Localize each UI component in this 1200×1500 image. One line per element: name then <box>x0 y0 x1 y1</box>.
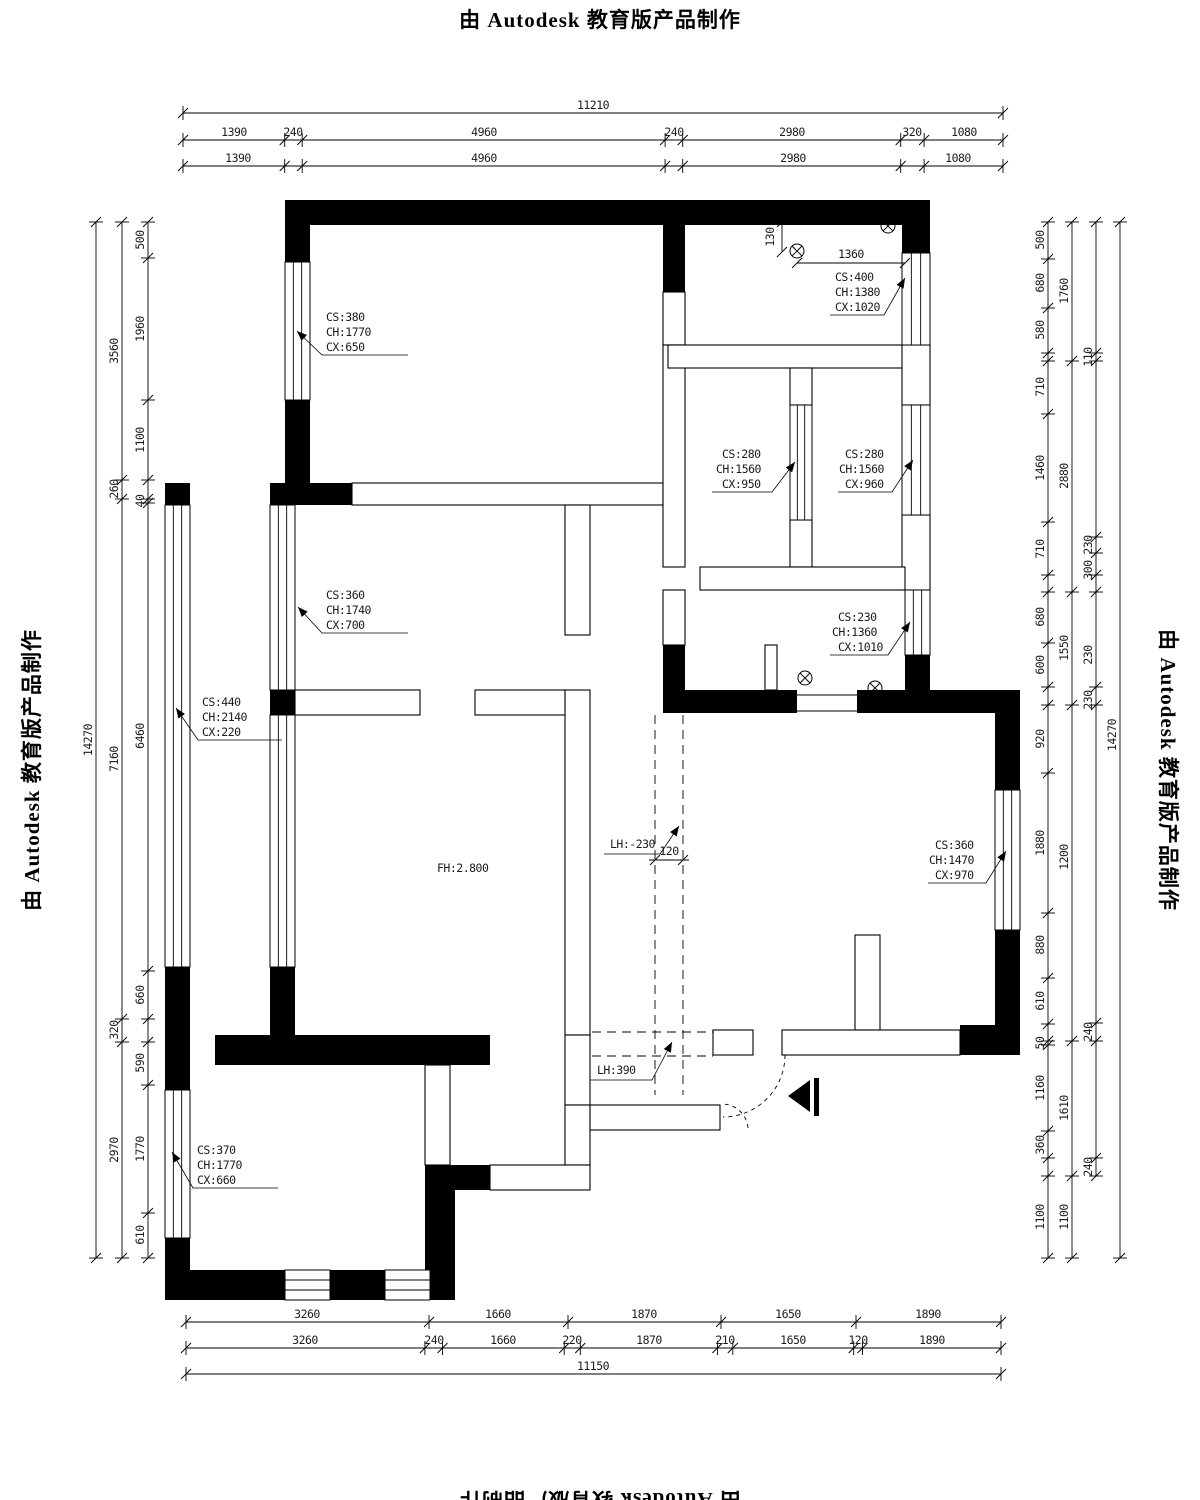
dim-text: 1100 <box>1057 1204 1071 1230</box>
dim-text: 240 <box>1081 1157 1095 1177</box>
dim-text: 11210 <box>577 98 610 112</box>
wall-segment <box>663 690 797 713</box>
window <box>995 790 1020 930</box>
svg-text:CX:700: CX:700 <box>326 618 365 632</box>
door-swing-arc-small <box>722 1104 748 1128</box>
dim-chain: 500196011004064606605901770610 <box>133 217 155 1263</box>
window <box>902 253 930 345</box>
dim-text: 1080 <box>945 151 971 165</box>
dim-text: 1650 <box>775 1307 801 1321</box>
svg-text:CX:650: CX:650 <box>326 340 365 354</box>
dim-text: 2980 <box>779 125 805 139</box>
entry-arrow-icon <box>788 1080 810 1112</box>
dim-chain: 14270 <box>81 217 103 1263</box>
dim-text: 590 <box>133 1053 147 1073</box>
wall-segment <box>857 690 1020 713</box>
wall-segment <box>490 1165 590 1190</box>
dim-text: 1890 <box>919 1333 945 1347</box>
wall-segment <box>790 520 812 567</box>
circled-x-symbol <box>790 244 804 258</box>
window <box>165 1090 190 1238</box>
dim-text: 220 <box>562 1333 582 1347</box>
dimension-chains: 1121013902404960240298032010801390496029… <box>81 98 1127 1381</box>
dim-text: 1390 <box>221 125 247 139</box>
drawing-sheet: 由 Autodesk 教育版产品制作 由 Autodesk 教育版产品制作 由 … <box>0 0 1200 1500</box>
dim-text: 610 <box>1033 991 1047 1011</box>
window <box>905 590 930 655</box>
window-frame <box>270 715 295 967</box>
dim-text: 230 <box>1081 690 1095 710</box>
wall-segment <box>765 645 777 690</box>
dim-text: 230 <box>1081 645 1095 665</box>
dim-text: 4960 <box>471 125 497 139</box>
dim-text: 2970 <box>107 1137 121 1163</box>
svg-text:CS:400: CS:400 <box>835 270 874 284</box>
wall-segment <box>565 1035 590 1105</box>
wall-segment <box>782 1030 960 1055</box>
door-swing-arc <box>723 1055 785 1117</box>
svg-text:CS:360: CS:360 <box>935 838 974 852</box>
dim-text: 110 <box>1081 347 1095 367</box>
svg-text:CX:1010: CX:1010 <box>838 640 884 654</box>
dim-text: 240 <box>283 125 303 139</box>
window <box>790 405 812 520</box>
window <box>385 1270 430 1300</box>
svg-text:CH:1360: CH:1360 <box>832 625 878 639</box>
dim-text: 1770 <box>133 1136 147 1162</box>
dim-text: 1880 <box>1033 830 1047 856</box>
dim-text: 600 <box>1033 655 1047 675</box>
wall-segment <box>165 1270 285 1300</box>
wall-segment <box>565 505 590 635</box>
dim-text: 1610 <box>1057 1095 1071 1121</box>
dim-text: 320 <box>107 1020 121 1040</box>
wall-segment <box>663 200 685 292</box>
dim-text: 2880 <box>1057 463 1071 489</box>
dim-text: 1660 <box>490 1333 516 1347</box>
svg-text:CX:970: CX:970 <box>935 868 974 882</box>
dim-text: 300 <box>1081 560 1095 580</box>
window <box>270 715 295 967</box>
wall-segment <box>905 655 930 713</box>
dim-text: 260 <box>107 479 121 499</box>
floor-height-label: FH:2.800 <box>437 861 489 875</box>
dim-text: 1460 <box>1033 455 1047 481</box>
wall-segment <box>165 967 190 1090</box>
svg-text:CH:1560: CH:1560 <box>716 462 762 476</box>
dim-text: 3260 <box>294 1307 320 1321</box>
wall-segment <box>285 225 310 262</box>
dim-text: 610 <box>133 1225 147 1245</box>
dim-text: 7160 <box>107 746 121 772</box>
dim-chain: 1390240496024029803201080 <box>178 125 1008 147</box>
entry-arrow-bar <box>814 1078 819 1116</box>
dim-chain: 176028801550120016101100 <box>1057 217 1079 1263</box>
dim-text: 680 <box>1033 607 1047 627</box>
dim-chain: 356026071603202970 <box>107 217 129 1263</box>
window <box>285 1270 330 1300</box>
window-frame <box>902 405 930 515</box>
wall-segment <box>295 690 420 715</box>
svg-text:CS:230: CS:230 <box>838 610 877 624</box>
wall-segment <box>663 590 685 645</box>
window-frame <box>165 1090 190 1238</box>
window-frame <box>790 405 812 520</box>
dim-text: 920 <box>1033 729 1047 749</box>
wall-segment <box>270 690 295 715</box>
svg-text:CX:660: CX:660 <box>197 1173 236 1187</box>
dim-text: 1100 <box>1033 1204 1047 1230</box>
wall-segment <box>713 1030 753 1055</box>
dim-text: 240 <box>664 125 684 139</box>
dim-text: 120 <box>848 1333 868 1347</box>
svg-text:CS:440: CS:440 <box>202 695 241 709</box>
dim-text: 50 <box>1033 1036 1047 1049</box>
svg-text:CH:1740: CH:1740 <box>326 603 372 617</box>
dim-text: 660 <box>133 985 147 1005</box>
dim-text: 680 <box>1033 273 1047 293</box>
wall-segment <box>995 713 1020 790</box>
dim-text: 880 <box>1033 935 1047 955</box>
wall-segment <box>902 225 930 253</box>
window-frame <box>270 505 295 690</box>
dim-text: 1650 <box>780 1333 806 1347</box>
svg-text:CH:2140: CH:2140 <box>202 710 248 724</box>
dim-chain: 32601660187016501890 <box>181 1307 1006 1329</box>
floor-plan-canvas: 1121013902404960240298032010801390496029… <box>0 0 1200 1500</box>
dim-text: 320 <box>902 125 922 139</box>
wall-segment <box>960 1025 995 1055</box>
svg-text:LH:390: LH:390 <box>597 1063 636 1077</box>
dim-text: 1160 <box>1033 1075 1047 1101</box>
wall-segment <box>855 935 880 1030</box>
wall-segment <box>590 1105 720 1130</box>
dim-text: 360 <box>1033 1135 1047 1155</box>
dim-chain: 1390496029801080 <box>178 151 1008 173</box>
svg-text:CH:1560: CH:1560 <box>839 462 885 476</box>
wall-segment <box>565 690 590 1035</box>
dim-text: 1390 <box>225 151 251 165</box>
svg-text:CH:1470: CH:1470 <box>929 853 975 867</box>
svg-text:CX:220: CX:220 <box>202 725 241 739</box>
svg-text:130: 130 <box>763 227 777 247</box>
window-frame <box>385 1270 430 1300</box>
svg-text:1360: 1360 <box>838 247 864 261</box>
dim-chain: 11150 <box>181 1359 1006 1381</box>
wall-segment <box>285 400 310 483</box>
svg-text:CH:1770: CH:1770 <box>326 325 372 339</box>
dim-text: 14270 <box>81 723 95 756</box>
svg-text:CX:1020: CX:1020 <box>835 300 881 314</box>
svg-text:CS:280: CS:280 <box>722 447 761 461</box>
dim-chain: 32602401660220187021016501201890 <box>181 1333 1006 1355</box>
dim-text: 1660 <box>485 1307 511 1321</box>
dim-text: 500 <box>133 230 147 250</box>
wall-segment <box>215 1035 490 1065</box>
wall-segment <box>995 930 1020 1055</box>
svg-text:CX:950: CX:950 <box>722 477 761 491</box>
dim-text: 1870 <box>636 1333 662 1347</box>
dim-text: 1870 <box>631 1307 657 1321</box>
window-frame <box>285 1270 330 1300</box>
dim-text: 4960 <box>471 151 497 165</box>
svg-text:CS:370: CS:370 <box>197 1143 236 1157</box>
wall-segment <box>270 967 295 1035</box>
svg-text:CX:960: CX:960 <box>845 477 884 491</box>
dim-text: 3260 <box>292 1333 318 1347</box>
svg-text:CS:280: CS:280 <box>845 447 884 461</box>
wall-segment <box>902 515 930 590</box>
window-frame <box>902 253 930 345</box>
dim-text: 1960 <box>133 316 147 342</box>
wall-segment <box>790 368 812 405</box>
dim-text: 1760 <box>1057 278 1071 304</box>
dim-text: 1080 <box>951 125 977 139</box>
dim-text: 1200 <box>1057 844 1071 870</box>
dim-text: 1890 <box>915 1307 941 1321</box>
window-label-tl: CS:380 CH:1770 CX:650 <box>297 310 408 355</box>
window-label-left-long: CS:440 CH:2140 CX:220 <box>176 695 282 740</box>
dim-text: 11150 <box>577 1359 610 1373</box>
wall-segment <box>425 1165 490 1190</box>
window-label-room-left: CS:280 CH:1560 CX:950 <box>712 447 795 492</box>
dim-text: 3560 <box>107 338 121 364</box>
wall-segment <box>270 483 352 505</box>
svg-text:CS:360: CS:360 <box>326 588 365 602</box>
window <box>270 505 295 690</box>
dim-1360: 1360 <box>792 247 910 268</box>
dim-chain: 5006805807101460710680600920188088061050… <box>1033 217 1055 1263</box>
wall-segment <box>663 292 685 345</box>
wall-segment <box>700 567 905 590</box>
wall-segment <box>165 483 190 505</box>
wall-segment <box>565 1105 590 1165</box>
wall-segment <box>668 345 905 368</box>
dim-text: 710 <box>1033 539 1047 559</box>
dim-text: 240 <box>424 1333 444 1347</box>
window-label-tr: CS:400 CH:1380 CX:1020 <box>830 270 905 315</box>
dim-text: 40 <box>133 494 147 507</box>
wall-segment <box>352 483 663 505</box>
window-label-right: CS:360 CH:1470 CX:970 <box>928 838 1006 883</box>
wall-segment <box>330 1270 385 1300</box>
beam-label-lower: LH:390 <box>590 1042 672 1080</box>
window-label-cs230: CS:230 CH:1360 CX:1010 <box>830 610 910 655</box>
dim-text: 210 <box>715 1333 735 1347</box>
window-frame <box>165 505 190 967</box>
dim-text: 1100 <box>133 427 147 453</box>
dim-text: 500 <box>1033 230 1047 250</box>
dim-chain: 110230300230230240240 <box>1081 217 1103 1181</box>
dim-text: 240 <box>1081 1022 1095 1042</box>
svg-text:CH:1770: CH:1770 <box>197 1158 243 1172</box>
wall-segment <box>285 200 930 225</box>
dim-chain: 11210 <box>178 98 1008 120</box>
dim-text: 2980 <box>780 151 806 165</box>
circled-x-symbol <box>798 671 812 685</box>
window <box>165 505 190 967</box>
window-frame <box>995 790 1020 930</box>
beam-dashed-lines <box>592 715 713 1095</box>
wall-segment <box>902 345 930 405</box>
thin-lines <box>600 483 857 711</box>
svg-text:CH:1380: CH:1380 <box>835 285 881 299</box>
wall-segment <box>475 690 565 715</box>
dim-chain: 14270 <box>1105 217 1127 1263</box>
dim-text: 580 <box>1033 320 1047 340</box>
wall-segment <box>663 345 685 567</box>
dim-text: 14270 <box>1105 718 1119 751</box>
dim-text: 710 <box>1033 377 1047 397</box>
svg-text:LH:-230: LH:-230 <box>610 837 656 851</box>
window-label-inner-upper: CS:360 CH:1740 CX:700 <box>298 588 408 633</box>
dim-text: 230 <box>1081 535 1095 555</box>
svg-text:CS:380: CS:380 <box>326 310 365 324</box>
dim-text: 1550 <box>1057 635 1071 661</box>
window <box>902 405 930 515</box>
dim-text: 6460 <box>133 723 147 749</box>
window-frame <box>905 590 930 655</box>
wall-segment <box>425 1065 450 1165</box>
